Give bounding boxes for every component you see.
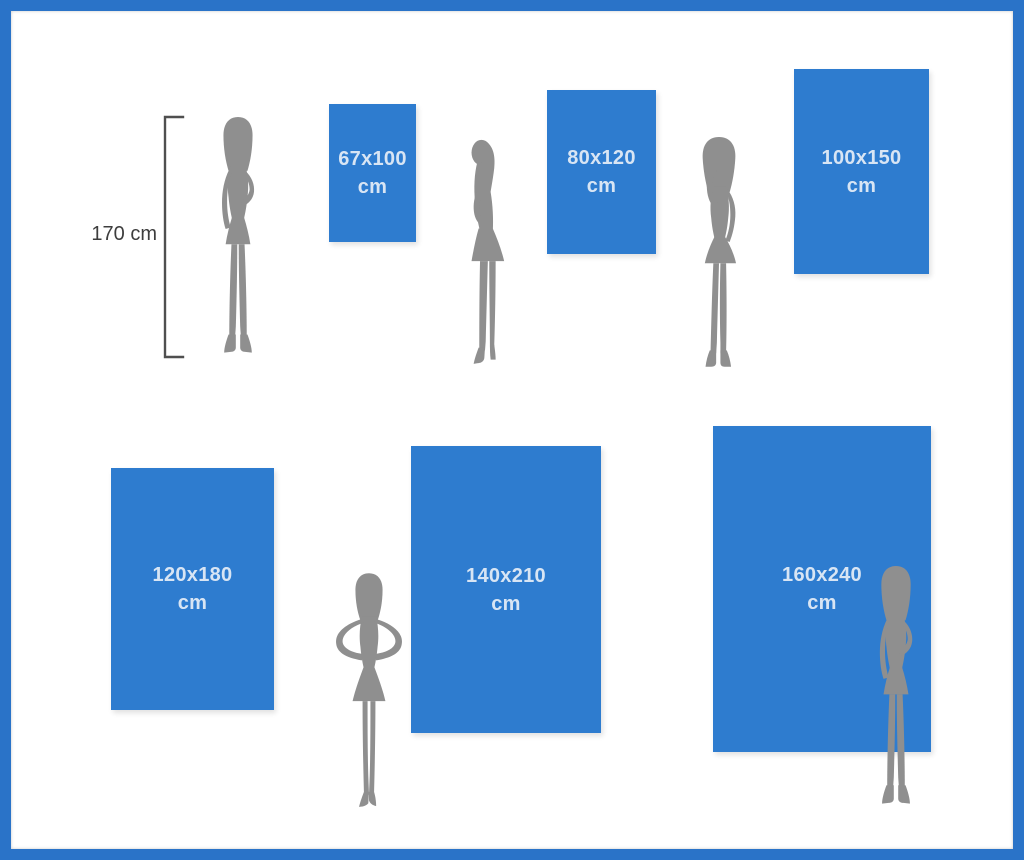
poster-140x210: 140x210 cm bbox=[411, 446, 601, 733]
reference-height-label: 170 cm bbox=[89, 223, 157, 246]
height-bracket-icon bbox=[161, 115, 185, 359]
woman-silhouette-front-icon bbox=[197, 117, 279, 357]
poster-size-text: 140x210 bbox=[466, 562, 546, 590]
poster-size-text: 120x180 bbox=[153, 561, 233, 589]
poster-unit-text: cm bbox=[491, 590, 521, 618]
poster-unit-text: cm bbox=[807, 589, 837, 617]
poster-size-text: 160x240 bbox=[782, 561, 862, 589]
woman-silhouette-handup-icon bbox=[677, 137, 761, 371]
poster-unit-text: cm bbox=[358, 173, 388, 201]
size-comparison-infographic: 170 cm 67x100 cm 80x120 cm 100x150 cm 12… bbox=[0, 0, 1024, 860]
poster-unit-text: cm bbox=[178, 589, 208, 617]
poster-120x180: 120x180 cm bbox=[111, 468, 274, 710]
woman-silhouette-side-icon bbox=[449, 137, 521, 371]
poster-size-text: 67x100 bbox=[338, 145, 407, 173]
poster-size-text: 100x150 bbox=[822, 144, 902, 172]
poster-unit-text: cm bbox=[847, 172, 877, 200]
woman-silhouette-front-icon bbox=[851, 566, 941, 808]
poster-67x100: 67x100 cm bbox=[329, 104, 416, 242]
poster-size-text: 80x120 bbox=[567, 144, 636, 172]
poster-100x150: 100x150 cm bbox=[794, 69, 929, 274]
poster-80x120: 80x120 cm bbox=[547, 90, 656, 254]
woman-silhouette-akimbo-icon bbox=[319, 571, 419, 809]
poster-unit-text: cm bbox=[587, 172, 617, 200]
